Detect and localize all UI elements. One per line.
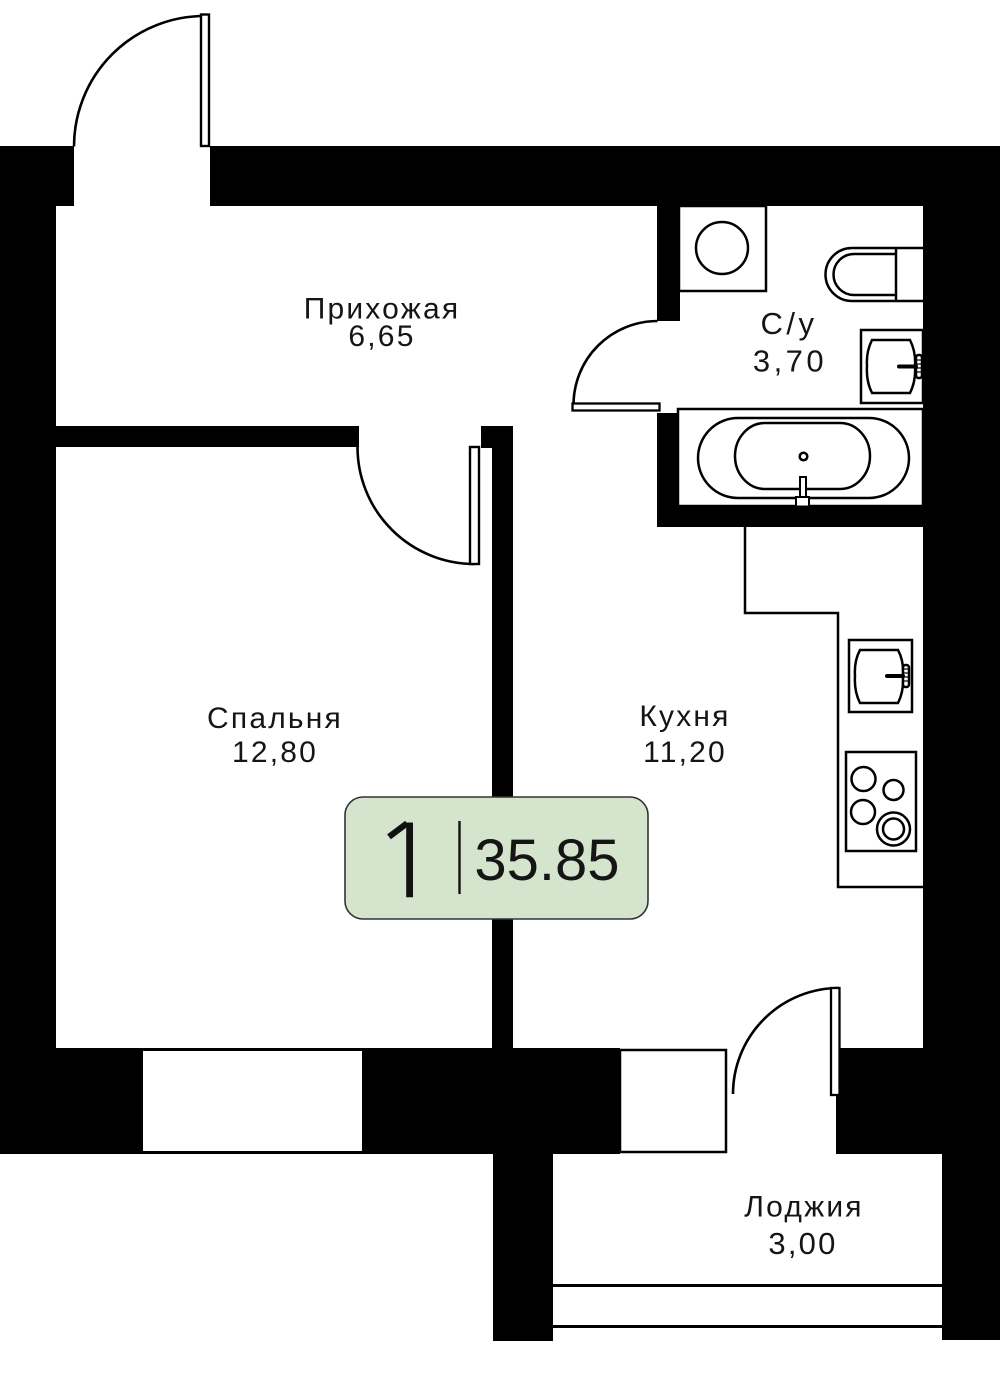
svg-text:6,65: 6,65	[348, 320, 415, 353]
svg-text:3,00: 3,00	[768, 1226, 837, 1261]
svg-text:35.85: 35.85	[474, 828, 619, 893]
svg-text:Кухня: Кухня	[639, 700, 730, 733]
svg-text:С/у: С/у	[761, 306, 818, 341]
svg-text:Лоджия: Лоджия	[744, 1191, 864, 1224]
svg-text:Спальня: Спальня	[207, 702, 343, 735]
svg-text:12,80: 12,80	[232, 736, 318, 769]
svg-text:3,70: 3,70	[753, 344, 827, 379]
svg-text:11,20: 11,20	[643, 736, 727, 769]
